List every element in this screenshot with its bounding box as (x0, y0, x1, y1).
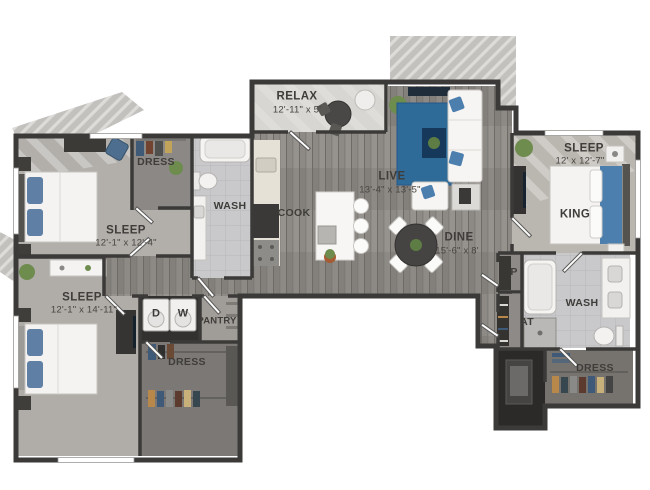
hanging-clothes (148, 390, 155, 407)
plant (515, 139, 533, 157)
closet-shelving (226, 346, 238, 406)
sleep-lower-left-dims: 12'-1" x 14'-11" (51, 305, 117, 315)
island-sink (318, 226, 336, 244)
sleep-upper-left-label: SLEEP (106, 225, 146, 237)
toilet-tank (616, 326, 623, 346)
stove (253, 240, 279, 266)
relax-dims: 12'-11" x 5' (273, 105, 321, 115)
bar-stool (354, 199, 369, 214)
bar-stool (354, 219, 369, 234)
bathtub-basin (528, 264, 552, 310)
hanging-clothes (165, 141, 172, 153)
balcony-table (325, 101, 351, 127)
hanging-clothes (146, 141, 153, 154)
closet-shelving (499, 256, 511, 290)
tv (523, 172, 526, 208)
pantry-label: PANTRY (197, 316, 236, 326)
sleep-upper-left-dims: 12'-1" x 12'-4" (95, 238, 156, 248)
dress-lower-left-label: DRESS (168, 357, 206, 368)
shower-drain (538, 331, 543, 336)
refrigerator (253, 204, 279, 238)
hanging-clothes (561, 377, 568, 393)
hanging-clothes (155, 141, 163, 156)
plant (19, 264, 35, 280)
shelf-line (498, 316, 508, 318)
hanging-clothes (166, 390, 173, 407)
floorplan-canvas: RELAX 12'-11" x 5' LIVE 13'-4" x 13'-5" … (0, 0, 650, 490)
cook-label: COOK (278, 208, 311, 219)
hanging-clothes (157, 391, 164, 407)
bed-pillow (27, 177, 43, 204)
hanging-clothes (579, 377, 586, 393)
stove-burner (270, 245, 274, 249)
nightstand (17, 308, 31, 322)
nightstand (17, 157, 31, 171)
hanging-clothes (136, 141, 144, 156)
relax-label: RELAX (277, 91, 318, 103)
pantry-shelf (226, 326, 238, 329)
stove-burner (258, 245, 262, 249)
washer-label: W (178, 309, 188, 320)
sleep-right-label: SLEEP (564, 143, 604, 155)
dresser (50, 260, 106, 276)
sleep-lower-left-label: SLEEP (62, 292, 102, 304)
hanging-clothes (175, 391, 182, 407)
nightstand (17, 396, 31, 410)
dresser-plant (85, 265, 91, 271)
live-label: LIVE (378, 171, 405, 183)
toilet (594, 327, 614, 345)
bar-stool (354, 239, 369, 254)
nightstand (608, 244, 624, 252)
plant (428, 137, 440, 149)
bed-pillow (27, 329, 43, 356)
folded-clothes (552, 359, 570, 363)
bed-pillow (590, 170, 602, 202)
bathtub-basin (205, 140, 245, 158)
live-dims: 13'-4" x 13'-5" (359, 185, 420, 195)
stove-burner (270, 257, 274, 261)
sink (608, 292, 622, 308)
desk (64, 137, 106, 152)
right-corridor-floor (478, 296, 498, 348)
dine-dims: 15'-6" x 8' (435, 246, 479, 256)
storage-cabinet-front (510, 366, 528, 396)
stove-burner (258, 257, 262, 261)
pantry-shelf (226, 302, 238, 305)
speaker (459, 188, 471, 204)
closet-coat-label: AT (520, 317, 534, 328)
king-bed-label: KING (560, 209, 590, 221)
sink (608, 266, 622, 282)
dresser-decor (60, 266, 65, 271)
hanging-clothes (193, 391, 200, 407)
hanging-clothes (184, 390, 191, 407)
bed-headboard (622, 164, 630, 246)
dine-label: DINE (444, 232, 473, 244)
hanging-clothes (606, 376, 613, 393)
dress-upper-left-label: DRESS (137, 157, 175, 168)
wash-main-label: WASH (214, 201, 247, 212)
balcony-stool (355, 90, 375, 110)
bed-pillow (27, 209, 43, 236)
hanging-clothes (588, 376, 595, 393)
nightstand (17, 244, 31, 256)
bed-blanket (600, 166, 622, 244)
hanging-clothes (552, 376, 559, 393)
plant (325, 249, 335, 259)
kitchen-sink (256, 158, 276, 172)
closet-p-label: P (510, 267, 517, 278)
plant-centerpiece (410, 239, 422, 251)
shelf-line (498, 328, 508, 330)
tv-console (408, 87, 450, 96)
dress-right-label: DRESS (576, 363, 614, 374)
toilet (199, 173, 217, 189)
bed-pillow (590, 206, 602, 238)
bed-pillow (27, 361, 43, 388)
sink (194, 206, 204, 218)
hanging-clothes (597, 377, 604, 393)
wash-ensuite-label: WASH (566, 298, 599, 309)
hanging-clothes (570, 376, 577, 393)
dryer-label: D (152, 309, 160, 320)
tv (133, 316, 136, 348)
nightstand-lamp (612, 151, 618, 157)
sleep-right-dims: 12' x 12'-7" (555, 156, 604, 166)
